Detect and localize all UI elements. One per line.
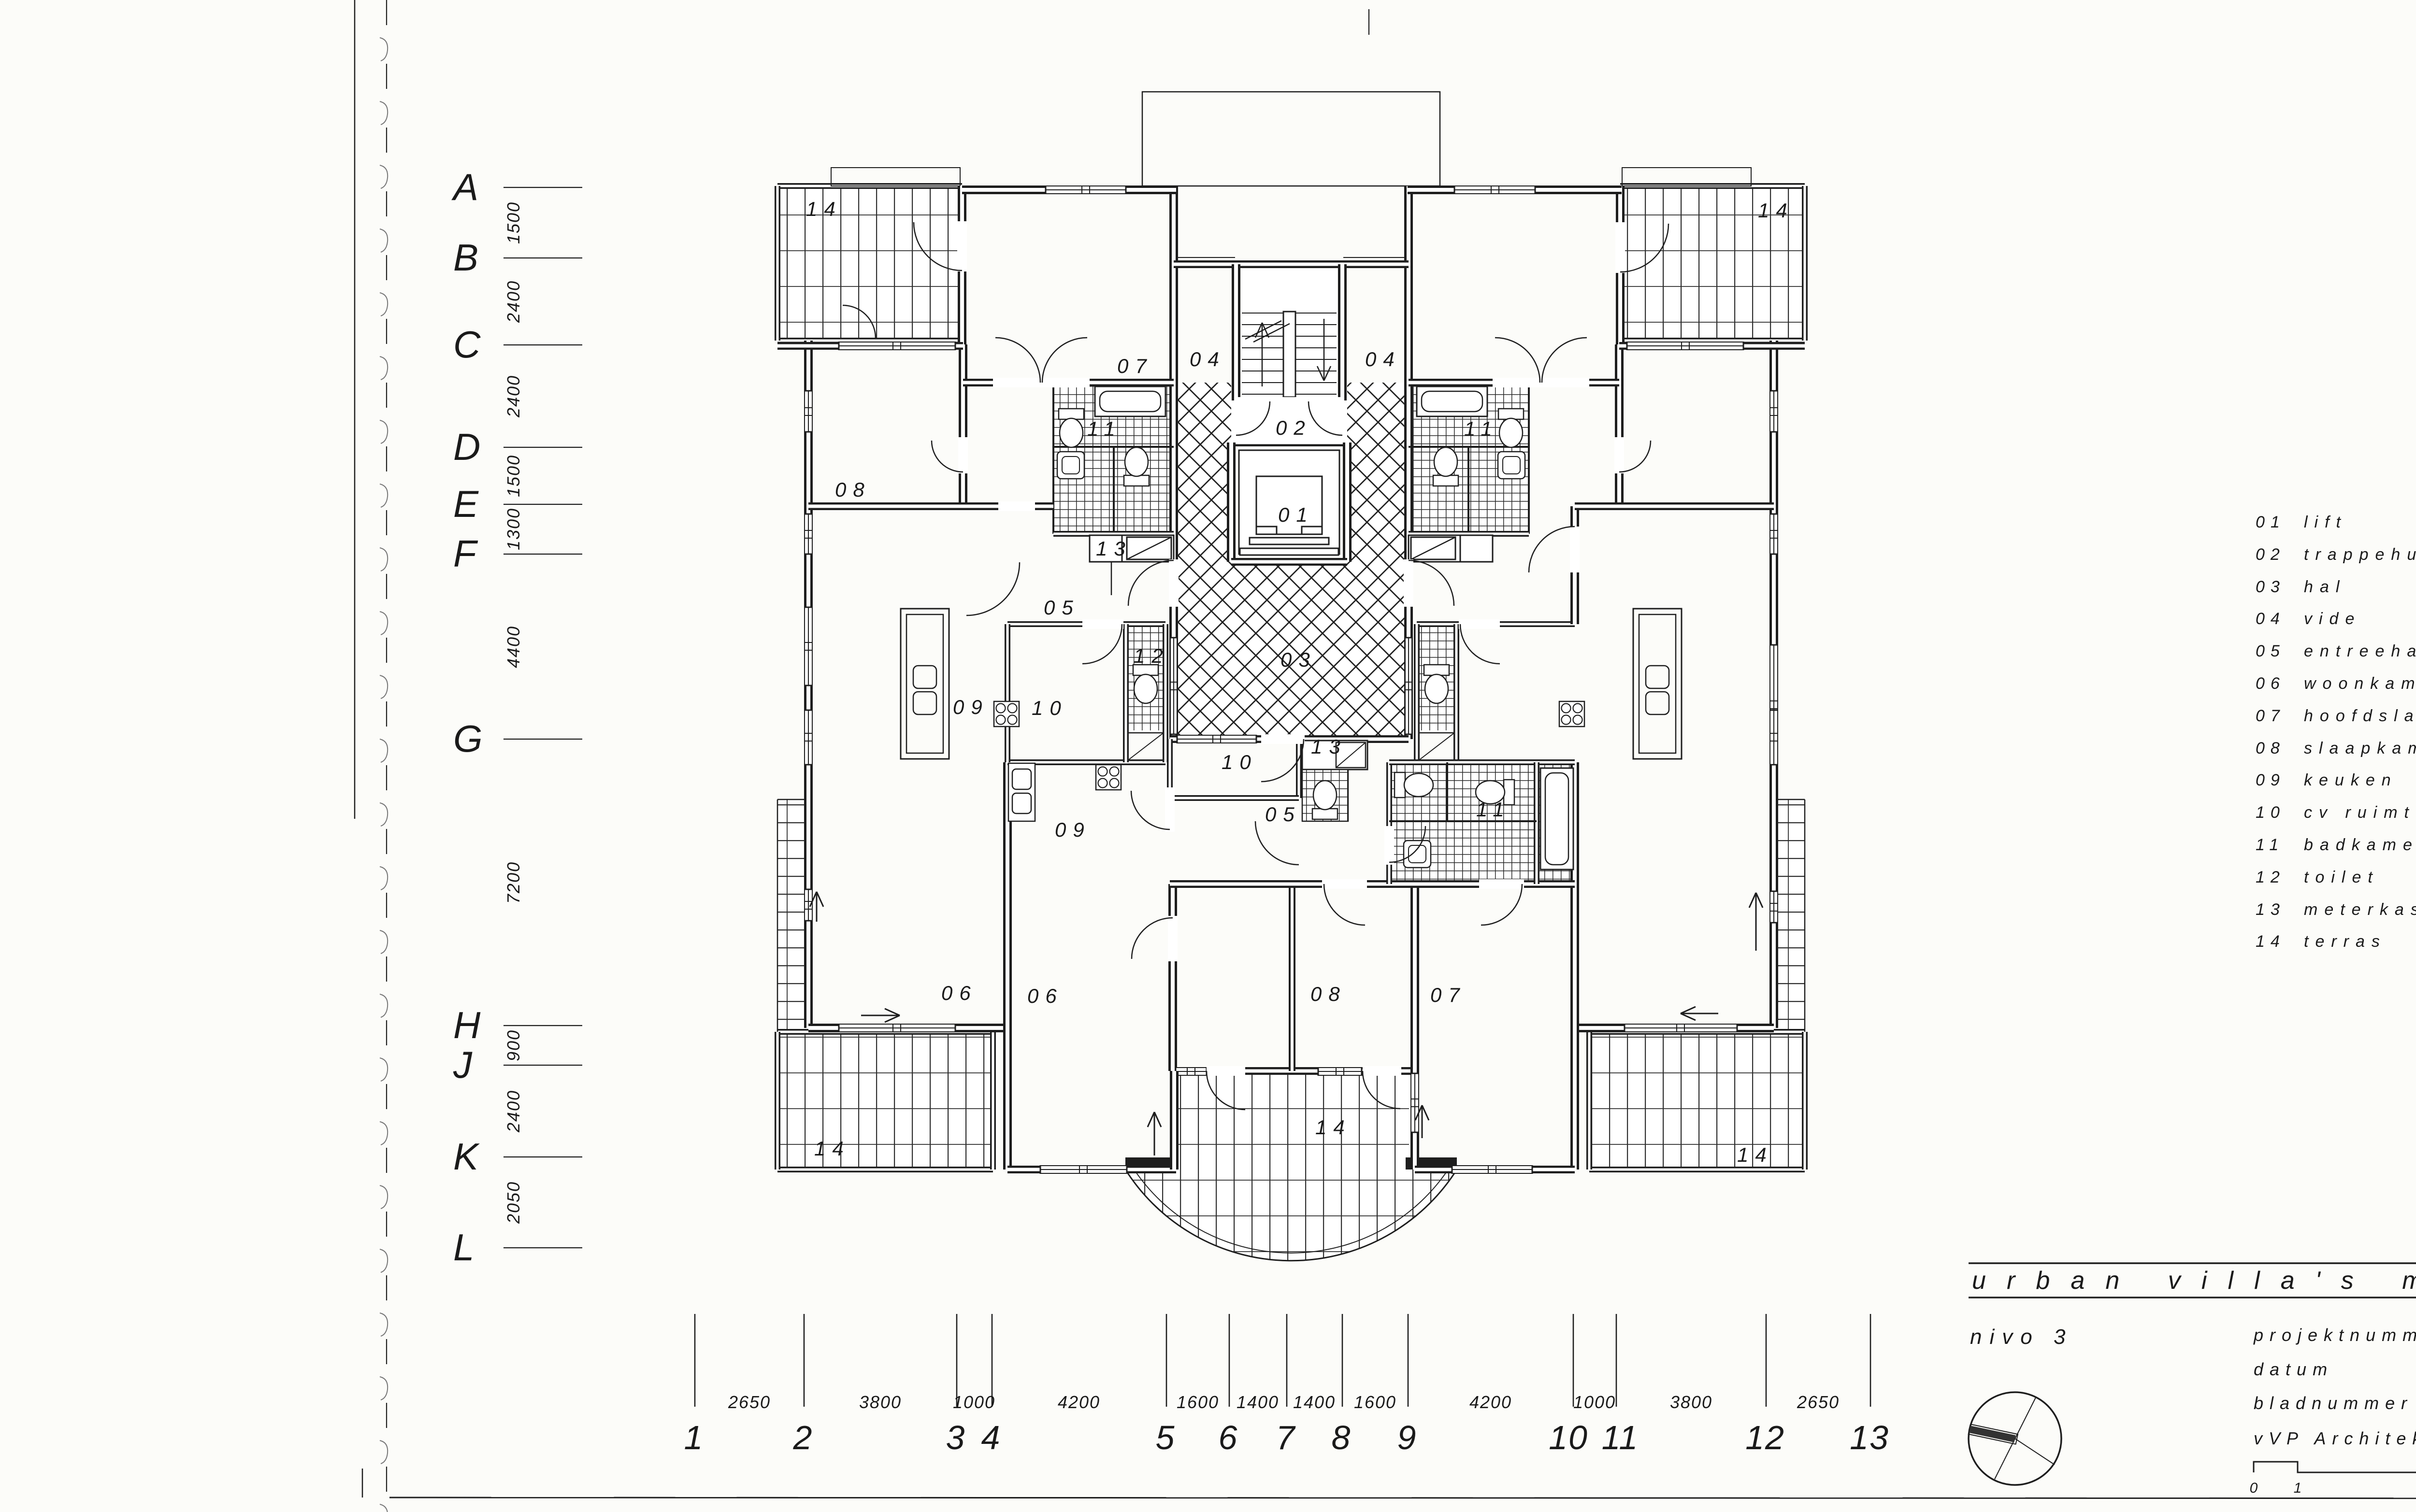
svg-text:10: 10 bbox=[1549, 1419, 1588, 1456]
svg-text:B: B bbox=[453, 236, 478, 279]
svg-text:11: 11 bbox=[1476, 798, 1511, 821]
svg-text:02: 02 bbox=[1276, 416, 1312, 439]
svg-text:14: 14 bbox=[806, 198, 842, 220]
svg-text:1000: 1000 bbox=[1573, 1392, 1616, 1412]
svg-text:11: 11 bbox=[2256, 836, 2284, 854]
svg-text:vide: vide bbox=[2304, 610, 2361, 628]
svg-text:14: 14 bbox=[2256, 932, 2286, 951]
svg-text:10: 10 bbox=[1222, 751, 1258, 773]
svg-text:keuken: keuken bbox=[2304, 771, 2398, 789]
svg-text:3: 3 bbox=[946, 1419, 966, 1456]
svg-text:F: F bbox=[453, 532, 478, 575]
svg-text:toilet: toilet bbox=[2304, 868, 2379, 886]
svg-text:woonkamer: woonkamer bbox=[2304, 674, 2416, 693]
svg-text:badkamer: badkamer bbox=[2304, 836, 2416, 854]
svg-text:bladnummer: bladnummer bbox=[2254, 1393, 2413, 1413]
svg-text:slaapkamer: slaapkamer bbox=[2304, 739, 2416, 757]
svg-text:vVP Architekten / MBB: vVP Architekten / MBB bbox=[2254, 1428, 2416, 1448]
svg-text:nivo 3: nivo 3 bbox=[1970, 1325, 2073, 1349]
svg-text:08: 08 bbox=[2256, 739, 2286, 757]
svg-text:4: 4 bbox=[981, 1419, 1001, 1456]
svg-text:2: 2 bbox=[793, 1419, 813, 1456]
svg-text:hoofdslaapkamer: hoofdslaapkamer bbox=[2304, 707, 2416, 725]
svg-text:A: A bbox=[451, 166, 478, 208]
svg-text:1: 1 bbox=[684, 1419, 704, 1456]
svg-text:01: 01 bbox=[1278, 503, 1314, 526]
svg-text:2400: 2400 bbox=[503, 280, 523, 323]
svg-text:05: 05 bbox=[1265, 803, 1301, 826]
svg-text:1: 1 bbox=[2294, 1480, 2302, 1496]
svg-text:13: 13 bbox=[2256, 900, 2286, 919]
svg-text:01: 01 bbox=[2256, 513, 2286, 531]
svg-text:02: 02 bbox=[2256, 545, 2286, 564]
svg-text:H: H bbox=[453, 1004, 481, 1046]
svg-text:14: 14 bbox=[1737, 1143, 1773, 1166]
svg-text:1600: 1600 bbox=[1354, 1392, 1396, 1412]
svg-text:terras: terras bbox=[2304, 932, 2387, 951]
svg-text:6: 6 bbox=[1219, 1419, 1238, 1456]
svg-text:datum: datum bbox=[2254, 1359, 2333, 1379]
svg-text:hal: hal bbox=[2304, 578, 2346, 596]
svg-text:0: 0 bbox=[2250, 1480, 2258, 1496]
svg-text:1000: 1000 bbox=[953, 1392, 995, 1412]
svg-text:1500: 1500 bbox=[503, 201, 523, 244]
svg-text:05: 05 bbox=[2256, 642, 2286, 660]
svg-text:projektnummer: projektnummer bbox=[2253, 1325, 2416, 1345]
svg-text:13: 13 bbox=[1850, 1419, 1889, 1456]
svg-text:12: 12 bbox=[1134, 644, 1170, 667]
svg-text:9: 9 bbox=[1397, 1419, 1417, 1456]
svg-text:trappehuis: trappehuis bbox=[2304, 545, 2416, 564]
svg-text:4400: 4400 bbox=[503, 626, 523, 668]
svg-text:04: 04 bbox=[1365, 348, 1401, 371]
svg-text:12: 12 bbox=[2256, 868, 2286, 886]
svg-text:04: 04 bbox=[1190, 348, 1226, 371]
svg-text:L: L bbox=[453, 1226, 474, 1269]
svg-text:1500: 1500 bbox=[503, 455, 523, 497]
svg-text:3800: 3800 bbox=[859, 1392, 902, 1412]
svg-text:10: 10 bbox=[1032, 697, 1068, 719]
svg-text:06: 06 bbox=[941, 982, 978, 1004]
svg-text:G: G bbox=[453, 717, 483, 760]
svg-text:1300: 1300 bbox=[503, 508, 523, 550]
svg-text:09: 09 bbox=[1055, 818, 1091, 841]
svg-text:8: 8 bbox=[1332, 1419, 1352, 1456]
svg-text:D: D bbox=[453, 426, 480, 468]
svg-text:cv ruimte/berging: cv ruimte/berging bbox=[2304, 803, 2416, 822]
svg-text:K: K bbox=[453, 1135, 480, 1178]
svg-text:14: 14 bbox=[814, 1137, 850, 1160]
svg-text:900: 900 bbox=[503, 1029, 523, 1061]
svg-text:2650: 2650 bbox=[1797, 1392, 1840, 1412]
svg-text:11: 11 bbox=[1087, 417, 1122, 440]
svg-text:06: 06 bbox=[1027, 984, 1064, 1007]
svg-text:13: 13 bbox=[1311, 735, 1347, 758]
svg-text:3800: 3800 bbox=[1670, 1392, 1712, 1412]
svg-text:07: 07 bbox=[1430, 984, 1467, 1006]
svg-text:04: 04 bbox=[2256, 610, 2286, 628]
svg-text:06: 06 bbox=[2256, 674, 2286, 693]
svg-text:7: 7 bbox=[1276, 1419, 1296, 1456]
svg-text:14: 14 bbox=[1758, 199, 1794, 222]
svg-text:08: 08 bbox=[835, 478, 871, 501]
svg-text:09: 09 bbox=[953, 696, 989, 718]
svg-text:1600: 1600 bbox=[1177, 1392, 1219, 1412]
svg-text:C: C bbox=[453, 323, 481, 366]
svg-text:11: 11 bbox=[1464, 417, 1499, 440]
svg-text:E: E bbox=[453, 483, 479, 525]
svg-text:07: 07 bbox=[1117, 355, 1153, 377]
svg-text:10: 10 bbox=[2256, 803, 2286, 822]
svg-text:12: 12 bbox=[1745, 1419, 1785, 1456]
svg-text:meterkast: meterkast bbox=[2304, 900, 2416, 919]
svg-text:09: 09 bbox=[2256, 771, 2286, 789]
svg-text:07: 07 bbox=[2256, 707, 2286, 725]
svg-text:entreehal: entreehal bbox=[2304, 642, 2416, 660]
svg-text:2400: 2400 bbox=[503, 375, 523, 418]
svg-text:1400: 1400 bbox=[1237, 1392, 1279, 1412]
svg-text:J: J bbox=[453, 1043, 473, 1086]
svg-text:2650: 2650 bbox=[728, 1392, 771, 1412]
svg-text:4200: 4200 bbox=[1469, 1392, 1512, 1412]
svg-text:2400: 2400 bbox=[503, 1090, 523, 1133]
svg-text:11: 11 bbox=[1602, 1419, 1639, 1456]
svg-text:03: 03 bbox=[1280, 648, 1317, 671]
svg-text:2050: 2050 bbox=[503, 1181, 523, 1224]
svg-text:13: 13 bbox=[1096, 537, 1132, 560]
svg-text:1400: 1400 bbox=[1293, 1392, 1336, 1412]
svg-text:lift: lift bbox=[2304, 513, 2347, 531]
svg-text:03: 03 bbox=[2256, 578, 2286, 596]
svg-text:08: 08 bbox=[1310, 983, 1347, 1005]
svg-text:4200: 4200 bbox=[1058, 1392, 1100, 1412]
svg-text:14: 14 bbox=[1315, 1116, 1352, 1139]
svg-text:5: 5 bbox=[1156, 1419, 1176, 1456]
svg-text:7200: 7200 bbox=[503, 861, 523, 904]
svg-text:05: 05 bbox=[1044, 596, 1080, 619]
